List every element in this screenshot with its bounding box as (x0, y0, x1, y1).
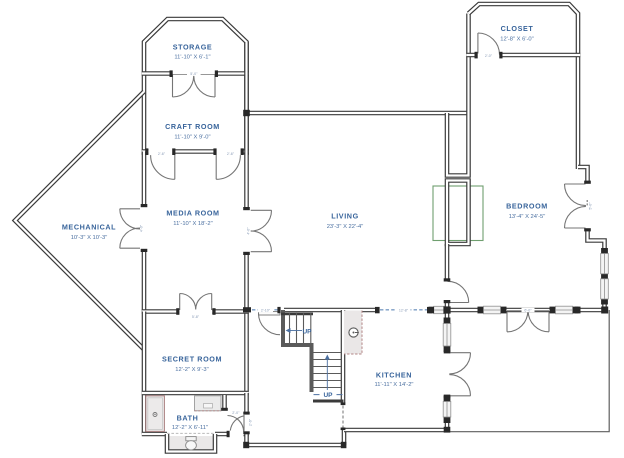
svg-text:11'-10" X 9'-0": 11'-10" X 9'-0" (174, 135, 210, 141)
svg-text:2'-0": 2'-0" (485, 54, 493, 58)
svg-text:BATH: BATH (177, 414, 199, 423)
svg-text:12'-2" X 9'-3": 12'-2" X 9'-3" (175, 367, 208, 373)
svg-text:LIVING: LIVING (331, 212, 359, 221)
svg-text:5'-8": 5'-8" (192, 315, 200, 319)
svg-text:CRAFT ROOM: CRAFT ROOM (165, 122, 220, 131)
svg-text:2'-0": 2'-0" (232, 411, 240, 415)
svg-text:6'-0": 6'-0" (524, 308, 532, 312)
svg-text:2'-10": 2'-10" (261, 308, 271, 312)
svg-text:2'-6": 2'-6" (248, 418, 252, 426)
svg-text:12'-8": 12'-8" (399, 308, 409, 312)
svg-text:BEDROOM: BEDROOM (506, 202, 548, 211)
svg-text:UP: UP (302, 328, 312, 335)
svg-text:SECRET ROOM: SECRET ROOM (162, 355, 222, 364)
svg-text:STORAGE: STORAGE (173, 43, 213, 52)
svg-text:5'-0": 5'-0" (190, 72, 198, 76)
svg-text:MEDIA ROOM: MEDIA ROOM (166, 209, 219, 218)
svg-text:11'-10" X 6'-1": 11'-10" X 6'-1" (174, 55, 210, 61)
svg-text:UP: UP (323, 392, 333, 399)
svg-text:13'-4" X 24'-5": 13'-4" X 24'-5" (509, 214, 546, 220)
svg-text:CLOSET: CLOSET (501, 24, 534, 33)
svg-text:5'-0": 5'-0" (588, 202, 592, 210)
svg-text:KITCHEN: KITCHEN (376, 371, 412, 380)
svg-text:11'-10" X 18'-2": 11'-10" X 18'-2" (173, 221, 212, 227)
svg-text:4'-0": 4'-0" (139, 224, 143, 232)
svg-text:2'-6": 2'-6" (227, 152, 235, 156)
svg-text:12'-2" X 6'-11": 12'-2" X 6'-11" (172, 425, 208, 431)
svg-text:2'-6": 2'-6" (158, 152, 166, 156)
svg-text:11'-11" X 14'-2": 11'-11" X 14'-2" (375, 382, 414, 388)
svg-text:10'-3" X 10'-3": 10'-3" X 10'-3" (71, 235, 108, 241)
svg-text:23'-3" X 22'-4": 23'-3" X 22'-4" (327, 224, 364, 230)
svg-text:12'-8" X 6'-0": 12'-8" X 6'-0" (500, 37, 533, 43)
svg-text:4'-0": 4'-0" (247, 227, 251, 235)
svg-text:MECHANICAL: MECHANICAL (62, 223, 116, 232)
